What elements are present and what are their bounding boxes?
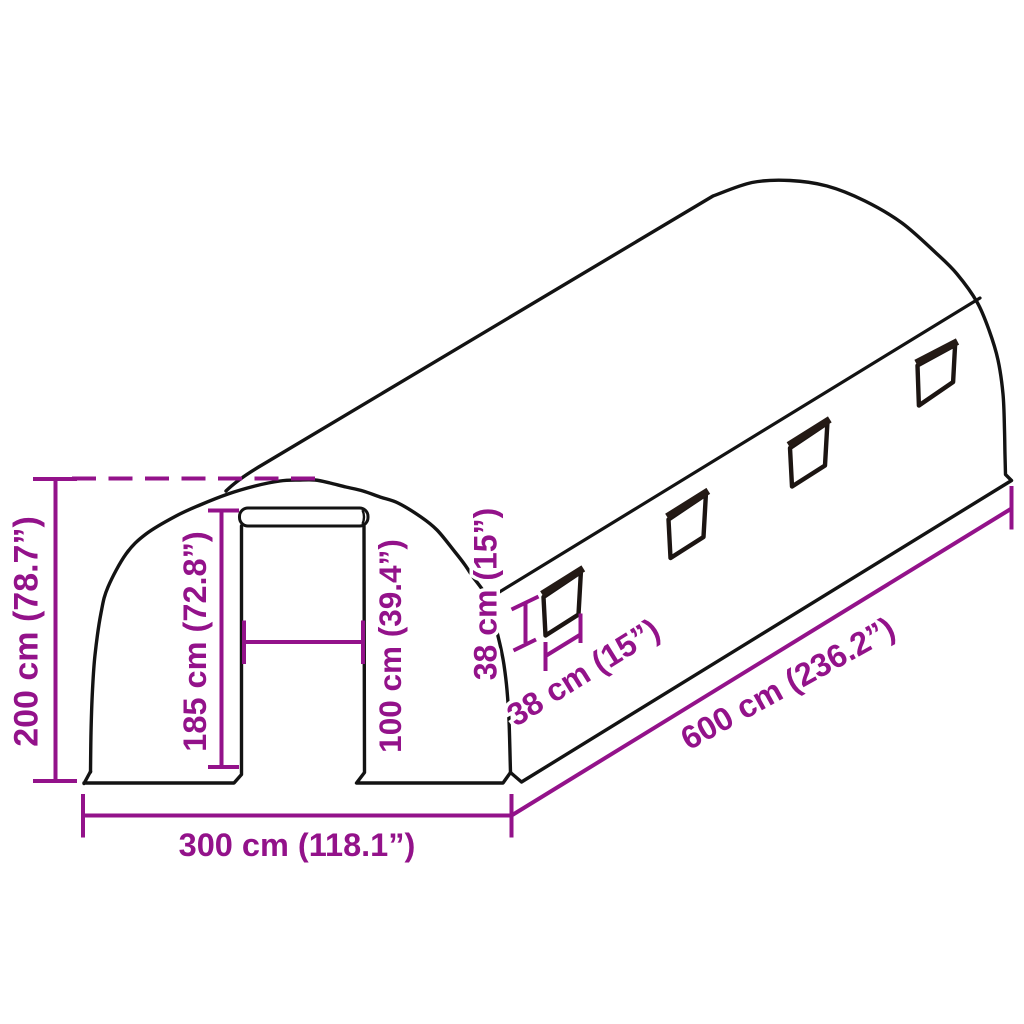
svg-text:200 cm (78.7”): 200 cm (78.7”): [8, 516, 46, 747]
svg-text:185 cm (72.8”): 185 cm (72.8”): [177, 531, 213, 751]
svg-text:100 cm (39.4”): 100 cm (39.4”): [372, 539, 408, 753]
svg-text:38 cm (15”): 38 cm (15”): [468, 508, 504, 681]
svg-text:300 cm (118.1”): 300 cm (118.1”): [179, 827, 416, 863]
